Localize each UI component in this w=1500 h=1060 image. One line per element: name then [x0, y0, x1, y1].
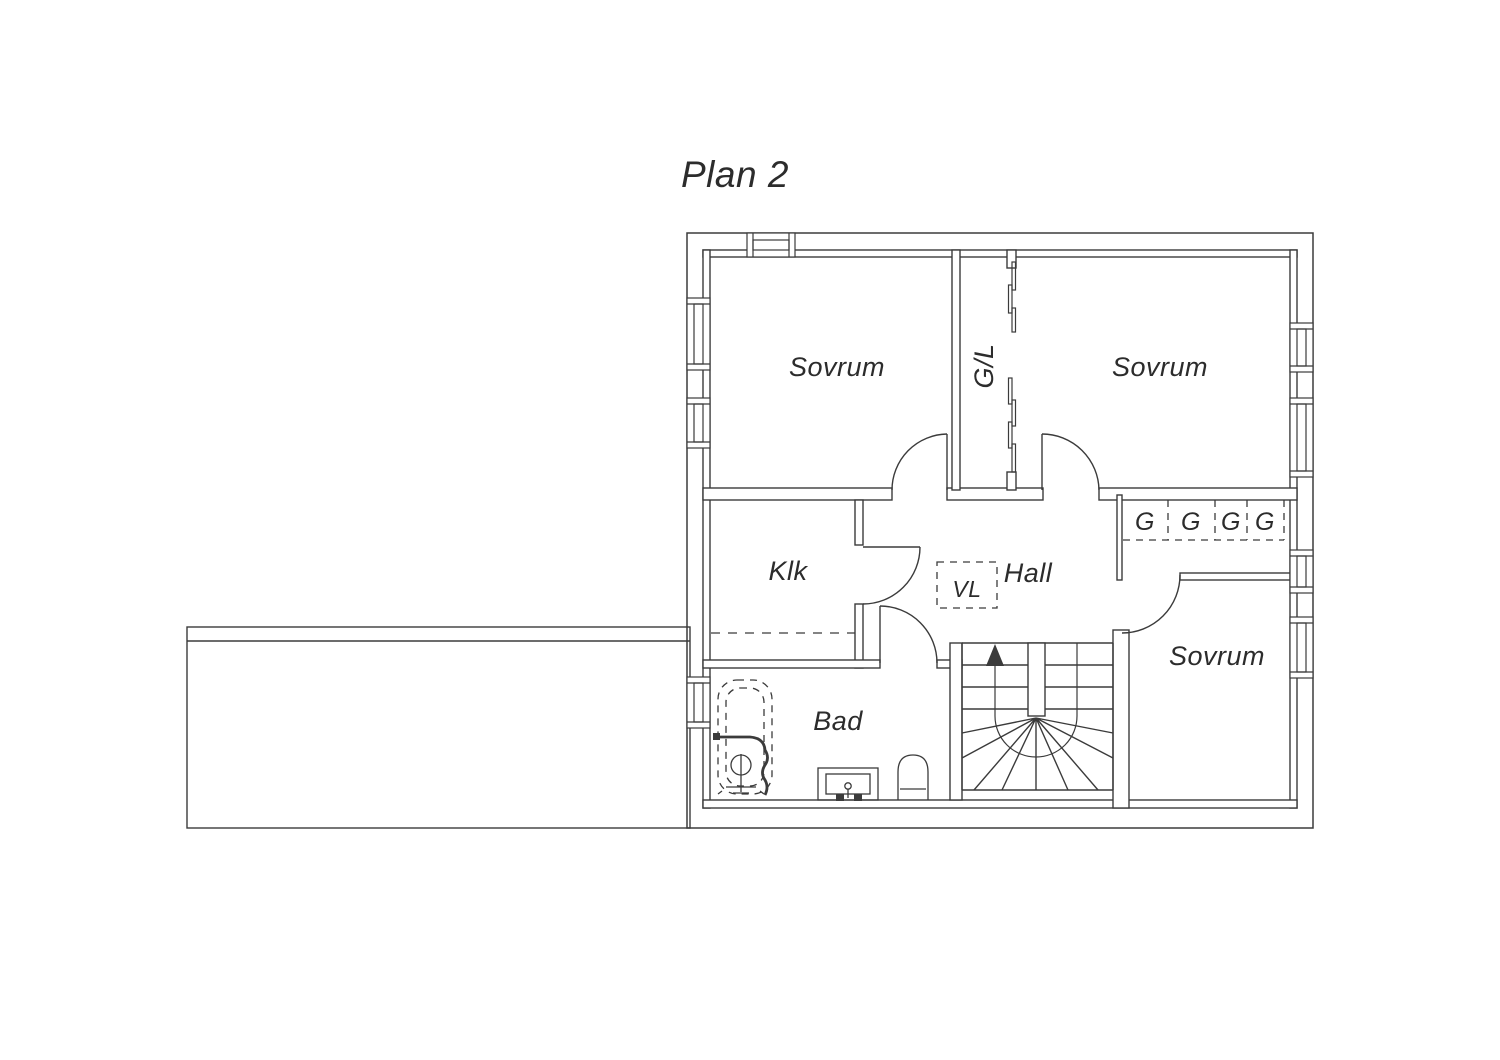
door-icon [1122, 575, 1180, 633]
label-wardrobe-g1: G [1135, 508, 1155, 536]
window-icon [687, 398, 710, 448]
window-icon [1290, 617, 1313, 678]
label-vl: VL [952, 576, 981, 602]
label-wardrobe-g4: G [1255, 508, 1275, 536]
stair-winders [962, 718, 1113, 790]
window-icon [747, 233, 795, 257]
floor-plan-canvas: Plan 2 [0, 0, 1500, 1060]
room-labels: Sovrum Sovrum Sovrum G/L Klk Hall VL Bad… [768, 343, 1274, 736]
door-icon [892, 434, 947, 490]
staircase [962, 643, 1113, 790]
wall-bedroom-gl [952, 250, 960, 490]
label-bathroom: Bad [813, 706, 863, 736]
bathroom-fixtures [713, 680, 928, 801]
sliding-door-icon [1009, 262, 1016, 472]
wall-spine-left [703, 488, 892, 500]
label-bedroom-top-right: Sovrum [1112, 352, 1208, 382]
doors [863, 434, 1180, 663]
floor-plan-page: Plan 2 [0, 0, 1500, 1060]
wall-spine-right [1099, 488, 1297, 500]
wall-klk-east-upper [855, 500, 863, 545]
wall-south [703, 800, 1297, 808]
label-walk-in-closet: Klk [768, 556, 808, 586]
door-icon [863, 547, 920, 604]
interior-walls [703, 250, 1297, 808]
wall-spine-mid [947, 488, 1043, 500]
wall-bedroom-br-north [1180, 573, 1290, 580]
exterior-walls [703, 250, 1297, 808]
balcony-outline [187, 627, 690, 828]
wall-gl-stub-bottom [1007, 472, 1016, 490]
window-icon [1290, 398, 1313, 477]
wall-niche-west [1117, 495, 1122, 580]
door-icon [1042, 434, 1099, 490]
window-icon [687, 298, 710, 370]
window-icon [1290, 323, 1313, 372]
shower-mixer-icon [718, 754, 764, 794]
label-wardrobe-g2: G [1181, 508, 1201, 536]
window-icon [687, 677, 710, 728]
plan-title: Plan 2 [681, 154, 789, 195]
sink-icon [818, 768, 878, 801]
toilet-icon [898, 755, 928, 800]
window-icon [1290, 550, 1313, 593]
wall-stair-east [1113, 630, 1129, 808]
building-outline [687, 233, 1313, 828]
wall-stair-west [950, 643, 962, 800]
stair-newel [1028, 643, 1045, 716]
balcony [187, 627, 690, 828]
label-linen-closet: G/L [969, 343, 999, 388]
wall-klk-east-lower [855, 604, 863, 668]
label-wardrobe-g3: G [1221, 508, 1241, 536]
door-icon [880, 606, 937, 663]
stair-up-arrow-icon [986, 644, 1004, 666]
label-bedroom-top-left: Sovrum [789, 352, 885, 382]
label-hall: Hall [1004, 558, 1053, 588]
wall-bad-north-left [703, 660, 880, 668]
label-bedroom-right: Sovrum [1169, 641, 1265, 671]
